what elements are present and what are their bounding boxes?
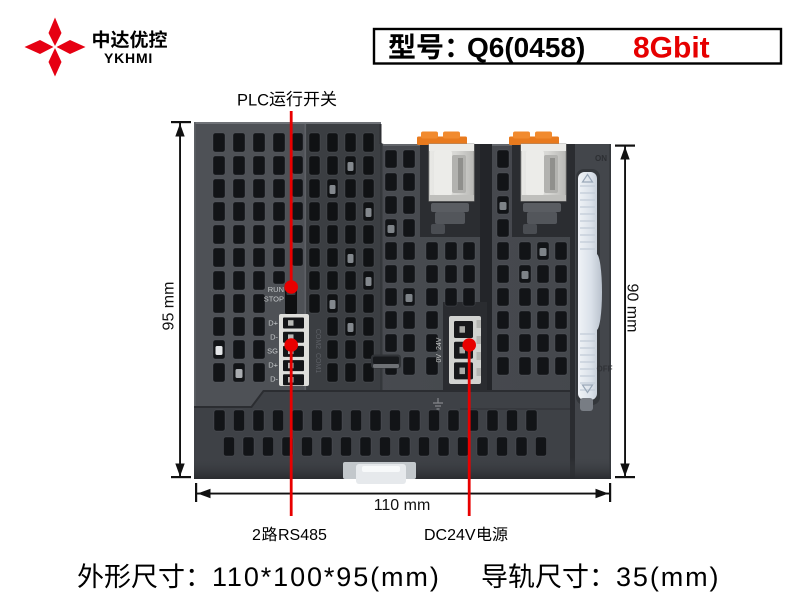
svg-text:2: 2	[252, 527, 261, 544]
svg-text:110 mm: 110 mm	[374, 497, 431, 514]
svg-text:Q6(0458): Q6(0458)	[467, 32, 585, 63]
svg-text:110*100*95(mm): 110*100*95(mm)	[212, 562, 441, 592]
svg-text:D-: D-	[270, 375, 278, 384]
svg-text:8Gbit: 8Gbit	[633, 32, 710, 65]
svg-text:PLC: PLC	[237, 92, 269, 110]
svg-text:COM2 COM1: COM2 COM1	[314, 329, 321, 373]
svg-text:90 mm: 90 mm	[624, 284, 641, 333]
svg-text:DC24V: DC24V	[424, 527, 476, 544]
svg-text:OFF: OFF	[597, 365, 613, 374]
svg-text:YKHMI: YKHMI	[104, 50, 153, 66]
svg-text:D-: D-	[270, 333, 278, 342]
svg-text:0V 24V: 0V 24V	[436, 337, 443, 362]
svg-text:STOP: STOP	[264, 295, 284, 304]
svg-text:D+: D+	[268, 361, 278, 370]
svg-text:35(mm): 35(mm)	[616, 562, 720, 592]
svg-text:95 mm: 95 mm	[161, 282, 178, 331]
svg-text:SG: SG	[267, 347, 278, 356]
svg-text:RS485: RS485	[278, 527, 327, 544]
svg-text:D+: D+	[268, 319, 278, 328]
svg-text:ON: ON	[595, 154, 607, 163]
svg-text:RUN: RUN	[268, 285, 284, 294]
